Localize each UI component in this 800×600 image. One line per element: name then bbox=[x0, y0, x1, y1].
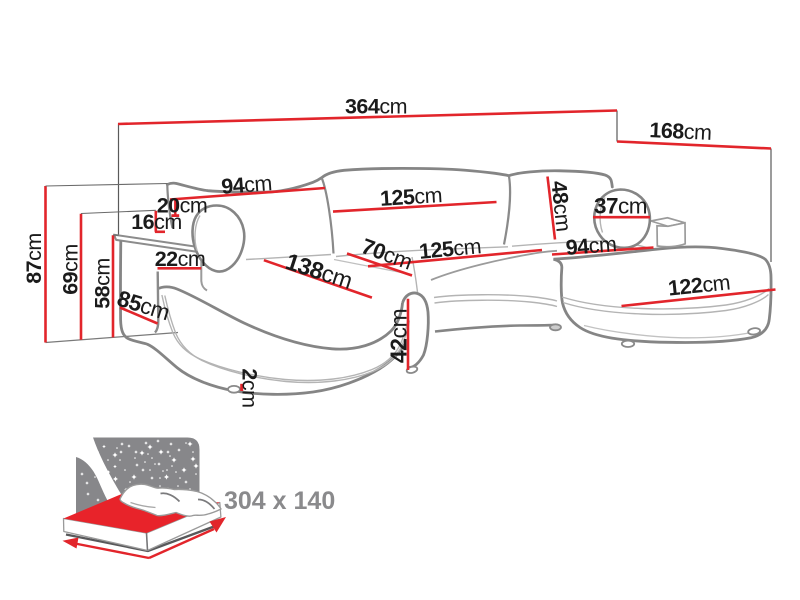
svg-text:69cm: 69cm bbox=[59, 244, 83, 295]
svg-text:42cm: 42cm bbox=[386, 309, 412, 363]
svg-text:37cm: 37cm bbox=[594, 194, 647, 219]
svg-text:87cm: 87cm bbox=[22, 233, 46, 284]
svg-text:125cm: 125cm bbox=[379, 183, 442, 211]
svg-text:16cm: 16cm bbox=[131, 210, 182, 234]
svg-text:94cm: 94cm bbox=[565, 232, 617, 260]
svg-text:364cm: 364cm bbox=[345, 95, 407, 119]
svg-text:2cm: 2cm bbox=[238, 368, 262, 407]
svg-text:58cm: 58cm bbox=[91, 258, 115, 309]
svg-text:94cm: 94cm bbox=[220, 171, 272, 199]
svg-text:168cm: 168cm bbox=[649, 118, 712, 145]
svg-text:304 x 140: 304 x 140 bbox=[224, 487, 335, 515]
svg-text:22cm: 22cm bbox=[155, 247, 206, 271]
